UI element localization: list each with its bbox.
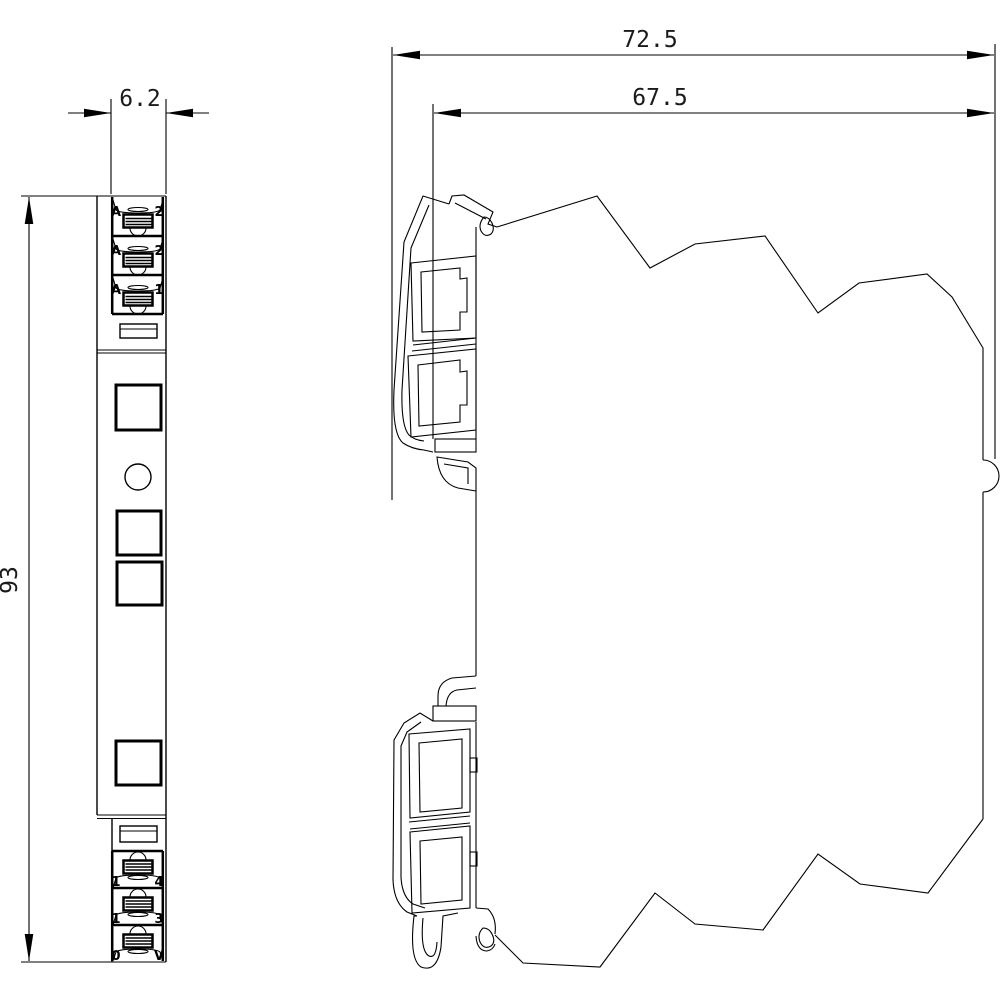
front-opening — [117, 511, 161, 555]
rail-clip-upper — [437, 457, 476, 491]
terminal-cell: A 2 — [111, 200, 164, 236]
mounting-hook — [449, 195, 497, 227]
dimension-label-total-depth: 72.5 — [622, 27, 677, 53]
technical-drawing-page: 6.2 72.5 67.5 93 — [0, 0, 1000, 1000]
terminal-label-left: A — [111, 283, 121, 298]
screw-hole — [480, 217, 493, 235]
rear-latch-pin — [983, 460, 999, 492]
din-rail-recess — [433, 439, 476, 721]
terminal-label-left: A — [111, 205, 121, 220]
terminal-label-right: V — [154, 949, 164, 964]
terminal-cell: 1 4 — [111, 852, 163, 890]
terminal-label-right: 1 — [154, 283, 163, 298]
arrow-up-icon — [25, 197, 34, 224]
arrow-left-icon — [393, 51, 420, 60]
dimension-label-front-width: 6.2 — [119, 86, 161, 112]
dimension-label-body-depth: 67.5 — [632, 85, 687, 111]
mounting-hook — [413, 913, 458, 968]
dimension-front-width: 6.2 — [68, 86, 209, 194]
terminal-cell: 1 3 — [111, 889, 163, 927]
housing-top-edge — [497, 196, 983, 460]
front-view: A 2 A 2 — [97, 196, 166, 964]
terminal-label-left: 1 — [111, 875, 120, 890]
front-opening — [117, 562, 162, 605]
arrow-down-icon — [25, 934, 34, 961]
terminal-label-right: 2 — [154, 205, 163, 220]
arrow-right-icon — [967, 51, 994, 60]
rail-clip-lower — [438, 676, 476, 706]
top-terminal-strip: A 2 A 2 — [111, 197, 164, 314]
terminal-label-left: A — [111, 244, 121, 259]
terminal-cell: A 1 — [111, 278, 164, 314]
arrow-right-icon — [84, 109, 111, 118]
terminal-label-right: 3 — [154, 912, 163, 927]
terminal-label-left: 1 — [111, 912, 120, 927]
lower-terminal-block — [393, 713, 495, 968]
screw-hole — [479, 928, 494, 947]
label-window — [120, 324, 157, 338]
technical-drawing: 6.2 72.5 67.5 93 — [0, 0, 1000, 1000]
terminal-label-left: 0 — [111, 949, 120, 964]
upper-terminal-block — [394, 195, 497, 452]
dimension-body-depth: 67.5 — [433, 85, 994, 439]
front-opening — [116, 385, 161, 430]
test-button — [125, 464, 151, 490]
dimension-total-depth: 72.5 — [392, 27, 995, 500]
dimension-label-height: 93 — [0, 566, 23, 594]
bottom-terminal-strip: 1 4 1 3 — [111, 851, 164, 964]
dimension-height: 93 — [0, 196, 166, 962]
arrow-left-icon — [434, 109, 461, 118]
side-view — [393, 195, 999, 968]
terminal-label-right: 2 — [154, 244, 163, 259]
terminal-cell: 0 V — [111, 926, 164, 964]
arrow-right-icon — [967, 109, 994, 118]
terminal-cell: A 2 — [111, 239, 164, 275]
label-window — [120, 826, 157, 842]
housing-bottom-edge — [495, 819, 983, 967]
arrow-left-icon — [166, 109, 193, 118]
terminal-label-right: 4 — [154, 875, 163, 890]
front-opening — [116, 741, 161, 785]
